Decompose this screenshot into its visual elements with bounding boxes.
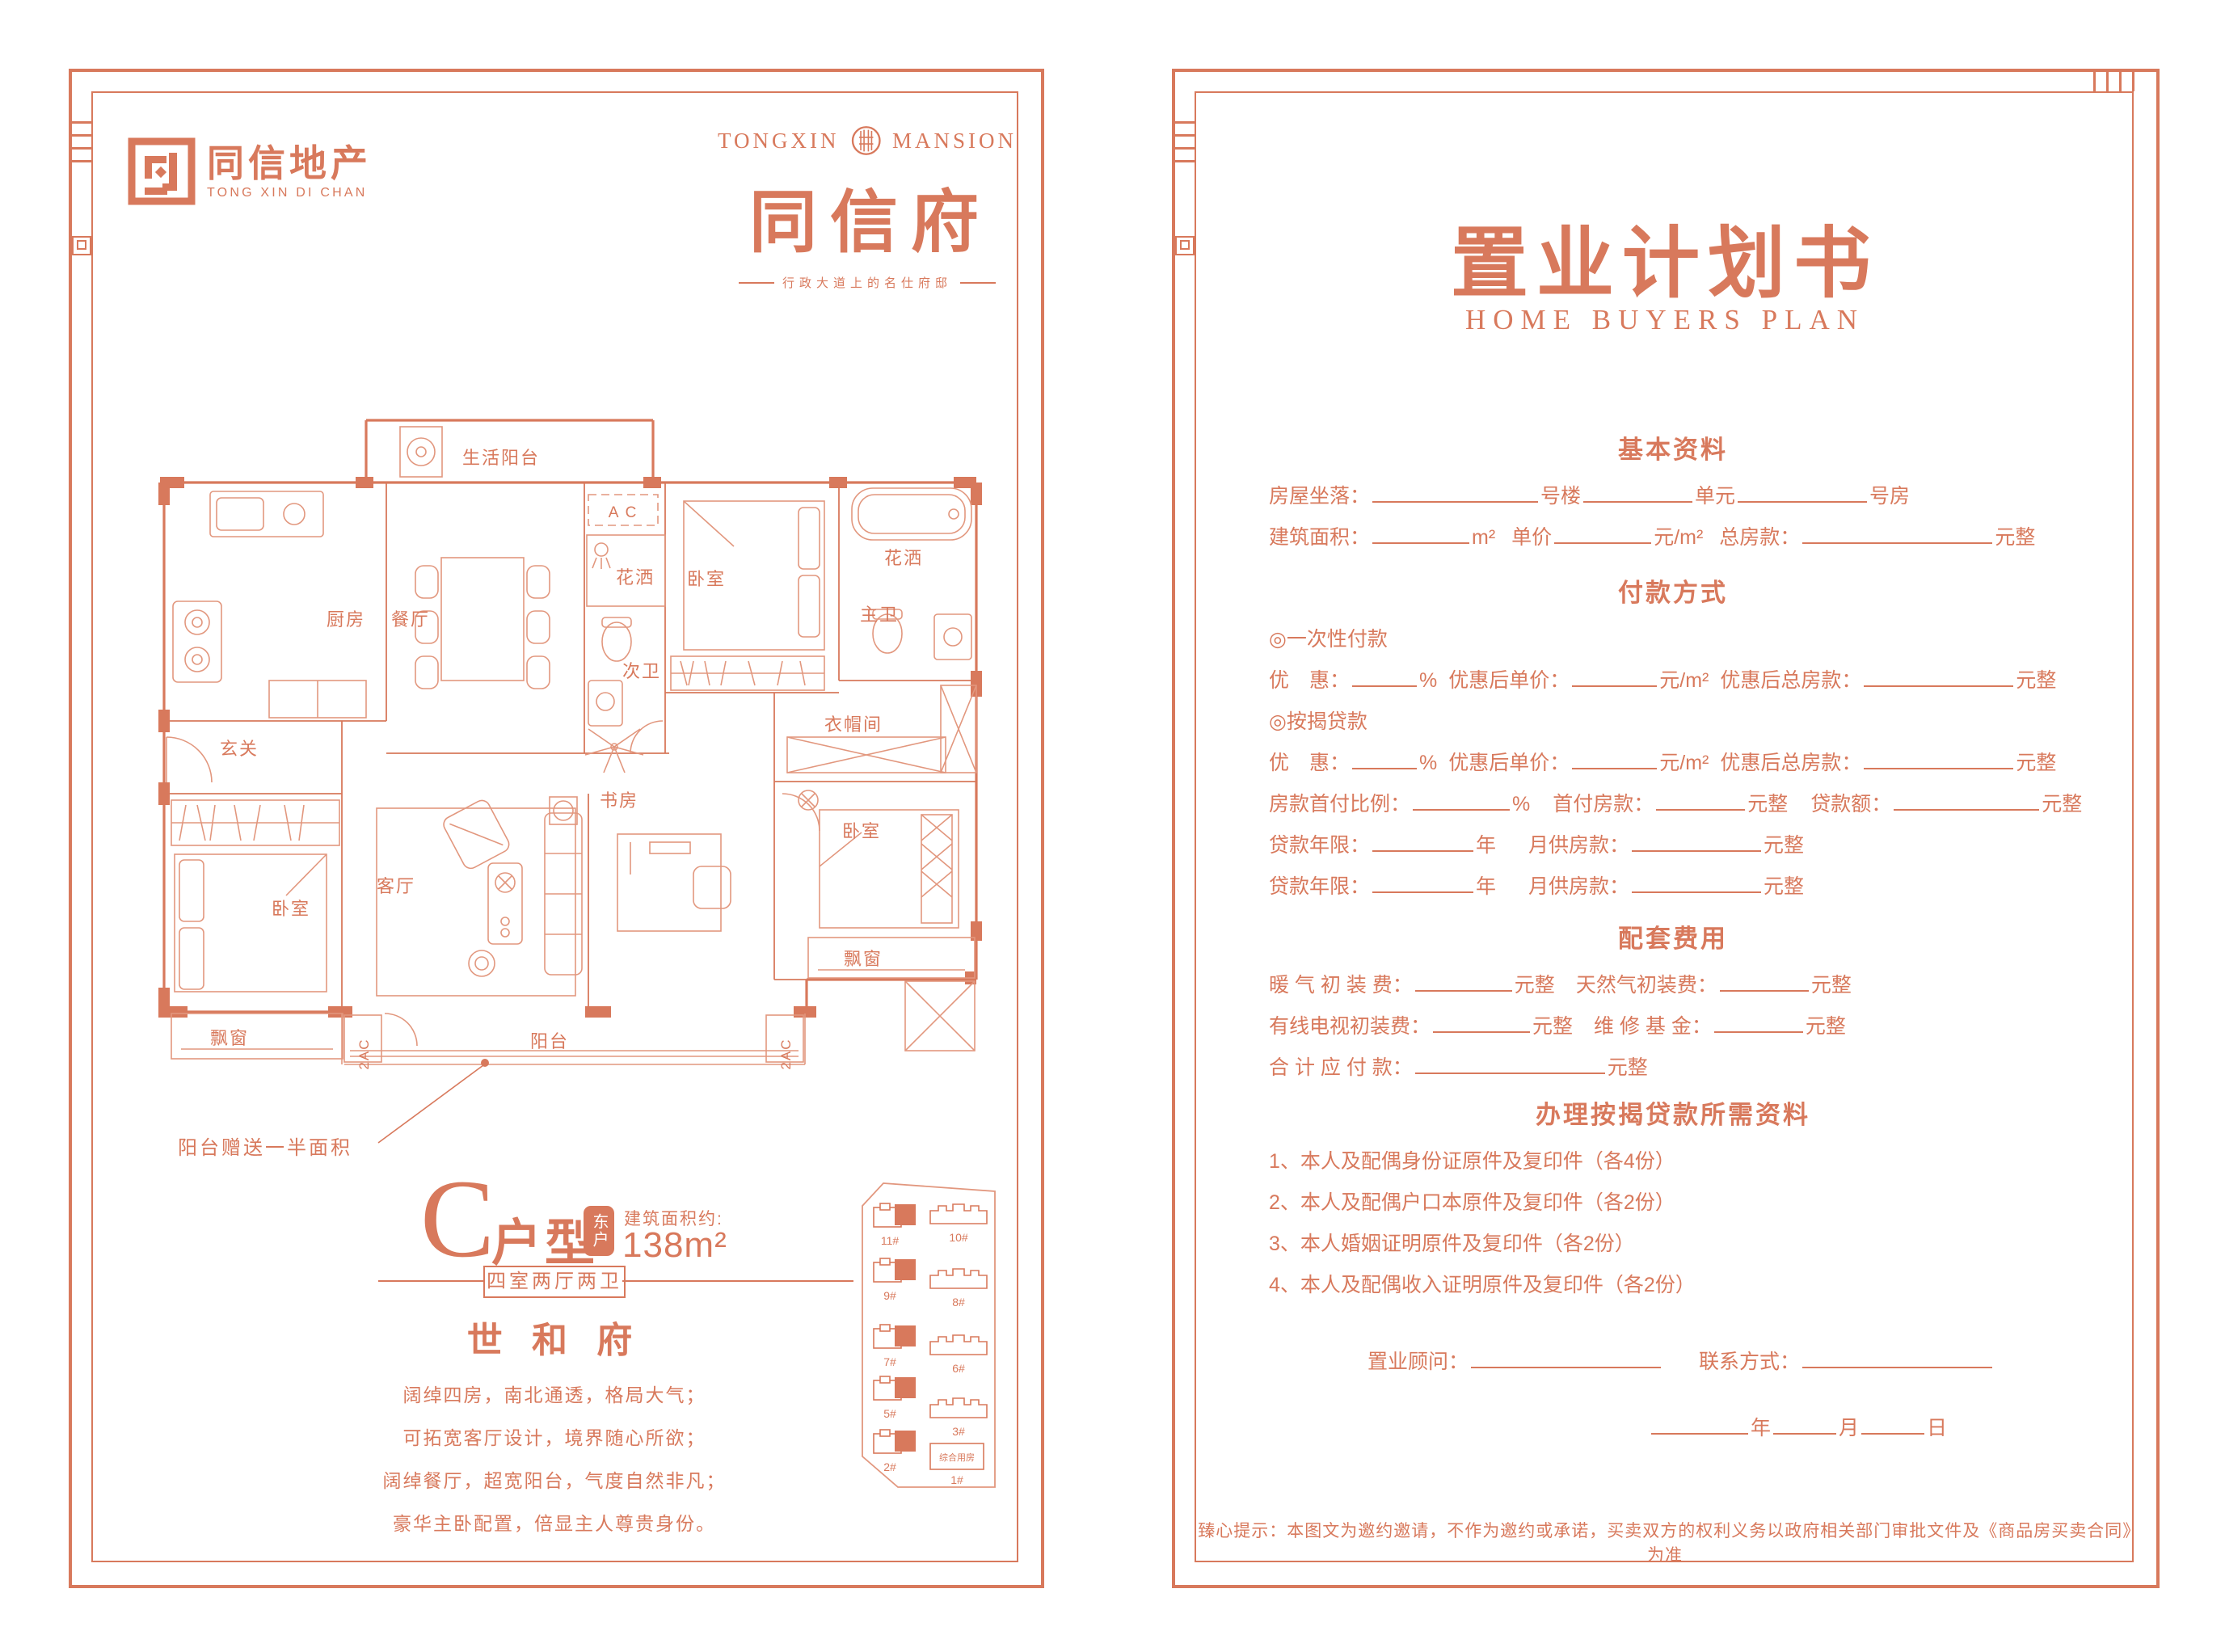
svg-text:9#: 9#	[883, 1289, 896, 1302]
floor-plan: 生活阳台 厨房 餐厅 A C 花洒 卧室 花洒 主卫 次卫 玄关 衣帽间 客厅 …	[136, 414, 983, 1178]
balcony-callout-text: 阳台赠送一半面积	[178, 1137, 352, 1159]
form-row: ◎一次性付款	[1269, 619, 2077, 660]
form-label: 总房款：	[1719, 526, 1800, 549]
fill-in-blank	[1773, 1409, 1836, 1435]
form-row: 合 计 应 付 款：元整	[1269, 1047, 2077, 1089]
form-label: 元/m²	[1659, 669, 1709, 692]
form-label: 天然气初装费：	[1576, 974, 1717, 997]
svg-text:3#: 3#	[952, 1425, 965, 1438]
form-row: ◎按揭贷款	[1269, 702, 2077, 743]
fill-in-blank	[1632, 867, 1761, 893]
svg-text:2#: 2#	[883, 1460, 896, 1473]
form-label: 有线电视初装费：	[1269, 1015, 1431, 1038]
section-heading: 付款方式	[1269, 575, 2077, 611]
svg-text:8#: 8#	[952, 1296, 965, 1309]
form-label: 2、本人及配偶户口本原件及复印件（各2份）	[1269, 1191, 1675, 1214]
fill-in-blank	[1583, 477, 1692, 503]
slogan-dash-right	[960, 282, 996, 284]
section-heading: 配套费用	[1269, 921, 2077, 957]
form-row: 优 惠：%优惠后单价：元/m²优惠后总房款：元整	[1269, 660, 2077, 702]
form-label: 元整	[1764, 875, 1804, 898]
ac-label: A C	[609, 504, 638, 521]
building-7: 7#	[874, 1325, 916, 1368]
form-label: 优 惠：	[1269, 752, 1350, 774]
form-row: 优 惠：%优惠后单价：元/m²优惠后总房款：元整	[1269, 743, 2077, 784]
form-label: 优惠后单价：	[1448, 669, 1570, 692]
unit-area-value: 138m²	[622, 1225, 727, 1266]
form-label: 单元	[1695, 485, 1735, 508]
spacer	[1703, 543, 1719, 544]
room-label-living: 客厅	[377, 876, 415, 896]
fill-in-blank	[1864, 744, 2013, 769]
unit-project-name: 世 和 府	[312, 1311, 797, 1363]
form-label: %	[1512, 793, 1530, 815]
fill-in-blank	[1471, 1342, 1661, 1368]
form-row: 暖 气 初 装 费：元整天然气初装费：元整	[1269, 965, 2077, 1006]
room-label-dining: 餐厅	[391, 609, 430, 630]
building-1-annex: 综合用房 1#	[930, 1443, 984, 1486]
unit-desc-line: 豪华主卧配置，倍显主人尊贵身份。	[272, 1502, 837, 1545]
consultant-row: 置业顾问：联系方式：	[1367, 1342, 1995, 1383]
svg-text:5#: 5#	[883, 1407, 896, 1420]
building-11: 11#	[874, 1203, 916, 1247]
section-mortgage-docs: 办理按揭贷款所需资料 1、本人及配偶身份证原件及复印件（各4份） 2、本人及配偶…	[1269, 1098, 2077, 1306]
form-label: 元整	[2042, 793, 2082, 815]
svg-text:6#: 6#	[952, 1362, 965, 1375]
form-label: 优惠后单价：	[1448, 752, 1570, 774]
form-label: 房款首付比例：	[1269, 793, 1410, 815]
spacer	[1496, 851, 1528, 852]
svg-text:11#: 11#	[881, 1234, 900, 1247]
form-label: 建筑面积：	[1269, 526, 1370, 549]
section-heading: 基本资料	[1269, 432, 2077, 468]
fill-in-blank	[1802, 518, 1992, 544]
form-label: ◎按揭贷款	[1269, 710, 1367, 733]
site-map: 11# 9# 7# 5#	[818, 1174, 1038, 1513]
form-label: 首付房款：	[1553, 793, 1654, 815]
room-label-cloakroom: 衣帽间	[824, 714, 883, 735]
document-subtitle: HOME BUYERS PLAN	[1196, 304, 2134, 336]
unit-suffix: 户型	[491, 1202, 598, 1275]
form-label: %	[1419, 752, 1437, 774]
mansion-en-right: MANSION	[892, 129, 1017, 154]
form-label: 1、本人及配偶身份证原件及复印件（各4份）	[1269, 1150, 1675, 1173]
floor-plan-wall-piers	[158, 477, 982, 1018]
right-frame-square-ornament	[1175, 236, 1195, 255]
form-row: 有线电视初装费：元整维 修 基 金：元整	[1269, 1006, 2077, 1047]
form-row: 1、本人及配偶身份证原件及复印件（各4份）	[1269, 1141, 2077, 1182]
room-label-study: 书房	[600, 790, 638, 811]
form-label: 3、本人婚姻证明原件及复印件（各2份）	[1269, 1233, 1635, 1255]
brochure-canvas: 同信地产 TONG XIN DI CHAN TONGXIN MANSION 同信…	[0, 0, 2225, 1652]
fill-in-blank	[1802, 1342, 1992, 1368]
form-row: 建筑面积：m²单价元/m²总房款：元整	[1269, 517, 2077, 558]
room-label-bedroom-right: 卧室	[842, 821, 881, 841]
unit-orientation-badge: 东户	[584, 1206, 614, 1256]
svg-text:1#: 1#	[950, 1473, 963, 1486]
svg-text:10#: 10#	[949, 1231, 968, 1244]
room-label-bay-left: 飘窗	[210, 1028, 249, 1048]
building-5: 5#	[874, 1376, 916, 1420]
right-frame-corner-ornament	[2093, 70, 2145, 91]
form-label: m²	[1472, 526, 1495, 549]
spacer	[1530, 810, 1553, 811]
right-frame-ornament	[1174, 121, 1195, 173]
unit-desc-line: 可拓宽客厅设计，境界随心所欲；	[272, 1417, 837, 1460]
fill-in-blank	[1352, 661, 1417, 687]
section-basic-info: 基本资料 房屋坐落：号楼单元号房 建筑面积：m²单价元/m²总房款：元整	[1269, 432, 2077, 558]
svg-text:7#: 7#	[883, 1355, 896, 1368]
spacer	[1709, 769, 1720, 769]
fill-in-blank	[1554, 518, 1651, 544]
fill-in-blank	[1372, 867, 1473, 893]
fill-in-blank	[1372, 518, 1469, 544]
form-label: 联系方式：	[1699, 1351, 1800, 1373]
fill-in-blank	[1352, 744, 1417, 769]
spacer	[1437, 769, 1448, 769]
form-label: 年	[1751, 1417, 1771, 1439]
brand-name-cn: 同信地产	[207, 143, 372, 183]
room-label-service-balcony: 生活阳台	[462, 448, 540, 468]
form-label: 号房	[1869, 485, 1910, 508]
form-label: 月供房款：	[1528, 834, 1629, 857]
form-label: 元整	[1747, 793, 1788, 815]
building-3: 3#	[930, 1398, 987, 1438]
brand-logo-icon	[128, 137, 196, 205]
form-label: 元整	[1806, 1015, 1846, 1038]
form-label: 元整	[1764, 834, 1804, 857]
disclaimer-text: 臻心提示：本图文为邀约邀请，不作为邀约或承诺，买卖双方的权利义务以政府相关部门审…	[1198, 1518, 2132, 1566]
balcony-callout-leader	[378, 1059, 489, 1143]
form-label: 优惠后总房款：	[1720, 669, 1861, 692]
fill-in-blank	[1656, 785, 1745, 811]
fill-in-blank	[1864, 661, 2013, 687]
form-label: 元/m²	[1654, 526, 1703, 549]
room-label-master-bath: 主卫	[860, 605, 899, 625]
form-label: 4、本人及配偶收入证明原件及复印件（各2份）	[1269, 1274, 1696, 1296]
brand-logo: 同信地产 TONG XIN DI CHAN	[128, 137, 372, 205]
form-row: 房屋坐落：号楼单元号房	[1269, 476, 2077, 517]
form-label: 年	[1476, 834, 1496, 857]
form-label: 维 修 基 金：	[1594, 1015, 1712, 1038]
building-2: 2#	[874, 1430, 916, 1473]
ac2-label-left: 2AC	[356, 1038, 372, 1069]
form-row: 2、本人及配偶户口本原件及复印件（各2份）	[1269, 1182, 2077, 1224]
form-label: 暖 气 初 装 费：	[1269, 974, 1413, 997]
section-heading: 办理按揭贷款所需资料	[1269, 1098, 2077, 1133]
fill-in-blank	[1632, 826, 1761, 852]
building-10: 10#	[930, 1204, 987, 1244]
room-label-balcony: 阳台	[530, 1031, 569, 1051]
tag-rule-left	[378, 1280, 483, 1282]
spacer	[1709, 686, 1720, 687]
room-label-shower-2: 花洒	[884, 548, 923, 568]
fill-in-blank	[1720, 966, 1809, 992]
form-row: 3、本人婚姻证明原件及复印件（各2份）	[1269, 1224, 2077, 1265]
site-map-buildings: 11# 9# 7# 5#	[874, 1203, 987, 1486]
building-8: 8#	[930, 1269, 987, 1309]
fill-in-blank	[1413, 785, 1510, 811]
room-label-shower-1: 花洒	[616, 567, 655, 588]
form-label: 贷款年限：	[1269, 834, 1370, 857]
left-frame-square-ornament	[72, 236, 91, 255]
fill-in-blank	[1714, 1007, 1803, 1033]
brand-name-en: TONG XIN DI CHAN	[207, 186, 372, 200]
spacer	[1437, 686, 1448, 687]
room-label-bathroom2: 次卫	[622, 661, 661, 681]
fill-in-blank	[1651, 1409, 1748, 1435]
unit-desc-line: 阔绰餐厅，超宽阳台，气度自然非凡；	[272, 1460, 837, 1502]
form-label: 月	[1839, 1417, 1859, 1439]
form-label: 元整	[1811, 974, 1852, 997]
fill-in-blank	[1894, 785, 2039, 811]
date-row: 年月日	[1649, 1408, 1947, 1449]
building-9: 9#	[874, 1258, 916, 1302]
form-row: 贷款年限：年月供房款：元整	[1269, 825, 2077, 866]
slogan-text: 行政大道上的名仕府邸	[782, 274, 952, 291]
mansion-slogan: 行政大道上的名仕府邸	[718, 274, 1017, 291]
form-label: 元整	[1608, 1056, 1648, 1079]
spacer	[1573, 1032, 1594, 1033]
form-label: 月供房款：	[1528, 875, 1629, 898]
spacer	[1788, 810, 1810, 811]
form-row: 贷款年限：年月供房款：元整	[1269, 866, 2077, 908]
form-label: 号楼	[1540, 485, 1581, 508]
fill-in-blank	[1861, 1409, 1924, 1435]
slogan-dash-left	[739, 282, 774, 284]
floor-plan-inner-walls	[164, 483, 976, 1012]
building-6: 6#	[930, 1335, 987, 1375]
form-label: 房屋坐落：	[1269, 485, 1370, 508]
form-label: ◎一次性付款	[1269, 628, 1388, 651]
room-label-bedroom-top: 卧室	[687, 569, 726, 589]
form-label: 合 计 应 付 款：	[1269, 1056, 1413, 1079]
form-label: 元整	[2016, 669, 2056, 692]
form-label: 元整	[1995, 526, 2035, 549]
mansion-logo: TONGXIN MANSION 同信府 行政大道上的名仕府邸	[718, 118, 1017, 291]
ac2-label-right: 2AC	[778, 1038, 794, 1069]
unit-desc-line: 阔绰四房，南北通透，格局大气；	[272, 1374, 837, 1417]
unit-letter: C	[420, 1170, 495, 1267]
fill-in-blank	[1738, 477, 1867, 503]
spacer	[1555, 991, 1576, 992]
form-label: 贷款额：	[1810, 793, 1891, 815]
mansion-seal-icon	[851, 118, 881, 163]
form-label: 元整	[1515, 974, 1555, 997]
spacer	[1663, 1368, 1699, 1368]
left-frame-ornament	[70, 121, 91, 173]
section-payment: 付款方式 ◎一次性付款 优 惠：%优惠后单价：元/m²优惠后总房款：元整 ◎按揭…	[1269, 575, 2077, 908]
document-title: 置业计划书	[1196, 200, 2134, 313]
form-row: 房款首付比例：%首付房款：元整贷款额：元整	[1269, 784, 2077, 825]
spacer	[1496, 892, 1528, 893]
fill-in-blank	[1572, 744, 1657, 769]
form-label: 优 惠：	[1269, 669, 1350, 692]
form-label: 置业顾问：	[1367, 1351, 1469, 1373]
room-label-kitchen: 厨房	[327, 609, 365, 630]
fill-in-blank	[1433, 1007, 1530, 1033]
section-fees: 配套费用 暖 气 初 装 费：元整天然气初装费：元整 有线电视初装费：元整维 修…	[1269, 921, 2077, 1089]
svg-text:综合用房: 综合用房	[939, 1452, 975, 1463]
fill-in-blank	[1372, 477, 1538, 503]
form-label: 年	[1476, 875, 1496, 898]
form-label: 元/m²	[1659, 752, 1709, 774]
mansion-name-cn: 同信府	[724, 168, 1017, 266]
form-label: %	[1419, 669, 1437, 692]
fill-in-blank	[1372, 826, 1473, 852]
room-label-foyer: 玄关	[220, 739, 259, 759]
form-label: 优惠后总房款：	[1720, 752, 1861, 774]
form-label: 元整	[2016, 752, 2056, 774]
fill-in-blank	[1415, 1048, 1605, 1074]
fill-in-blank	[1415, 966, 1512, 992]
form-row: 4、本人及配偶收入证明原件及复印件（各2份）	[1269, 1265, 2077, 1306]
form-label: 单价	[1511, 526, 1552, 549]
room-label-bay-right: 飘窗	[844, 949, 883, 969]
form-label: 日	[1927, 1417, 1947, 1439]
unit-layout-tag: 四室两厅两卫	[483, 1266, 626, 1298]
fill-in-blank	[1572, 661, 1657, 687]
room-label-bedroom-left: 卧室	[272, 899, 310, 919]
unit-description: 阔绰四房，南北通透，格局大气； 可拓宽客厅设计，境界随心所欲； 阔绰餐厅，超宽阳…	[272, 1374, 837, 1545]
mansion-en-left: TONGXIN	[718, 129, 840, 154]
spacer	[1495, 543, 1511, 544]
form-label: 贷款年限：	[1269, 875, 1370, 898]
form-label: 元整	[1532, 1015, 1573, 1038]
